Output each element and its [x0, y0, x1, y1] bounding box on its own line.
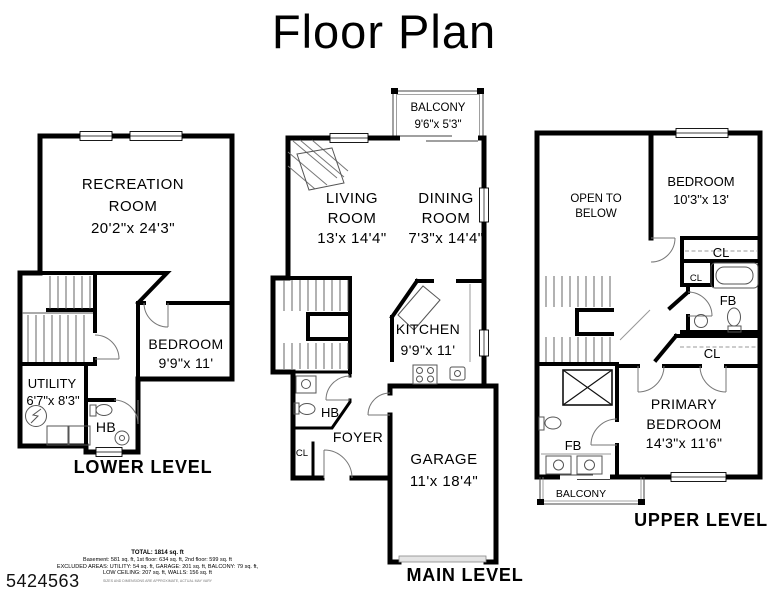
- foyer-label: FOYER: [333, 429, 383, 445]
- washer-dryer-icon: [47, 426, 90, 445]
- upper-bedroom-label: BEDROOM: [667, 174, 734, 189]
- main-hb-walls: [293, 372, 350, 478]
- mls-number: 5424563: [6, 571, 80, 592]
- living-room-dims: 13'x 14'4": [317, 230, 386, 247]
- main-level-plan: BALCONY 9'6"x 5'3" LIVING ROOM 13'x 14'4…: [273, 88, 524, 585]
- water-heater-icon: [26, 406, 47, 427]
- lower-bedroom-dims: 9'9"x 11': [159, 355, 214, 371]
- upper-door-arcs: [591, 238, 726, 445]
- main-stairs-icon: [284, 280, 348, 369]
- kitchen-dims: 9'9"x 11': [401, 342, 456, 358]
- lower-level-title: LOWER LEVEL: [74, 457, 213, 477]
- main-level-title: MAIN LEVEL: [406, 565, 523, 585]
- main-closet-label: CL: [296, 448, 308, 459]
- recreation-room-label: RECREATION: [82, 176, 184, 193]
- floor-plan-page: Floor Plan: [0, 0, 768, 594]
- disclaimer: SIZES AND DIMENSIONS ARE APPROXIMATE, AC…: [55, 579, 260, 583]
- area-line-1: Basement: 581 sq. ft, 1st floor: 634 sq.…: [55, 557, 260, 564]
- dining-room-label: DINING: [418, 190, 474, 207]
- upper-fb-bottom-label: FB: [565, 438, 582, 453]
- primary-bedroom-dims: 14'3"x 11'6": [646, 435, 723, 451]
- upper-fb-top-label: FB: [720, 293, 737, 308]
- main-balcony-dims: 9'6"x 5'3": [414, 119, 461, 131]
- area-line-3: LOW CEILING: 207 sq. ft, WALLS: 156 sq. …: [55, 570, 260, 577]
- upper-closet-small-label: CL: [690, 273, 702, 284]
- upper-fb-toilet-icon: [728, 308, 742, 332]
- upper-stairs-icon: [546, 276, 650, 362]
- closet-x-box: [563, 370, 612, 405]
- utility-dims: 6'7"x 8'3": [26, 393, 80, 408]
- garage-dims: 11'x 18'4": [410, 473, 478, 490]
- total-area: TOTAL: 1814 sq. ft: [55, 550, 260, 557]
- kitchen-label: KITCHEN: [396, 321, 460, 337]
- stove-icon: [413, 365, 437, 384]
- open-to-below-label2: BELOW: [575, 208, 617, 220]
- main-hb-label: HB: [321, 405, 339, 420]
- upper-closet-mid-label: CL: [704, 346, 721, 361]
- lower-door-arcs: [95, 303, 168, 424]
- toilet-icon: [90, 405, 112, 417]
- lower-bedroom-label: BEDROOM: [148, 336, 223, 352]
- living-room-label2: ROOM: [328, 210, 377, 227]
- sink-icon: [115, 431, 129, 445]
- upper-bedroom-dims: 10'3"x 13': [673, 192, 729, 207]
- garage-door: [399, 556, 486, 562]
- upper-closet-top-label: CL: [713, 245, 730, 260]
- area-summary: TOTAL: 1814 sq. ft Basement: 581 sq. ft,…: [55, 550, 260, 583]
- fireplace-icon: [288, 140, 348, 190]
- utility-label: UTILITY: [28, 376, 77, 391]
- upper-level-plan: OPEN TO BELOW BEDROOM 10'3"x 13' CL CL F…: [537, 129, 768, 531]
- garage-label: GARAGE: [410, 451, 477, 468]
- dining-room-label2: ROOM: [422, 210, 471, 227]
- bathtub-icon: [711, 263, 758, 288]
- living-room-label: LIVING: [326, 190, 378, 207]
- floor-plan-drawing: RECREATION ROOM 20'2"x 24'3" BEDROOM 9'9…: [0, 0, 768, 594]
- lower-hb-label: HB: [96, 419, 116, 435]
- upper-balcony-label: BALCONY: [556, 488, 606, 500]
- primary-bedroom-label2: BEDROOM: [646, 416, 721, 432]
- dining-room-dims: 7'3"x 14'4": [408, 230, 483, 247]
- primary-bedroom-label: PRIMARY: [651, 396, 718, 412]
- main-hb-fixtures: [294, 376, 316, 415]
- main-balcony-label: BALCONY: [411, 102, 466, 114]
- kitchen-sink-icon: [450, 367, 465, 380]
- open-to-below-label: OPEN TO: [570, 193, 621, 205]
- recreation-room-dims: 20'2"x 24'3": [91, 220, 175, 237]
- recreation-room-label2: ROOM: [109, 198, 158, 215]
- upper-level-title: UPPER LEVEL: [634, 510, 768, 530]
- lower-level-plan: RECREATION ROOM 20'2"x 24'3" BEDROOM 9'9…: [20, 132, 232, 478]
- lower-stairs-icon: [22, 276, 93, 362]
- sliding-door: [400, 133, 478, 143]
